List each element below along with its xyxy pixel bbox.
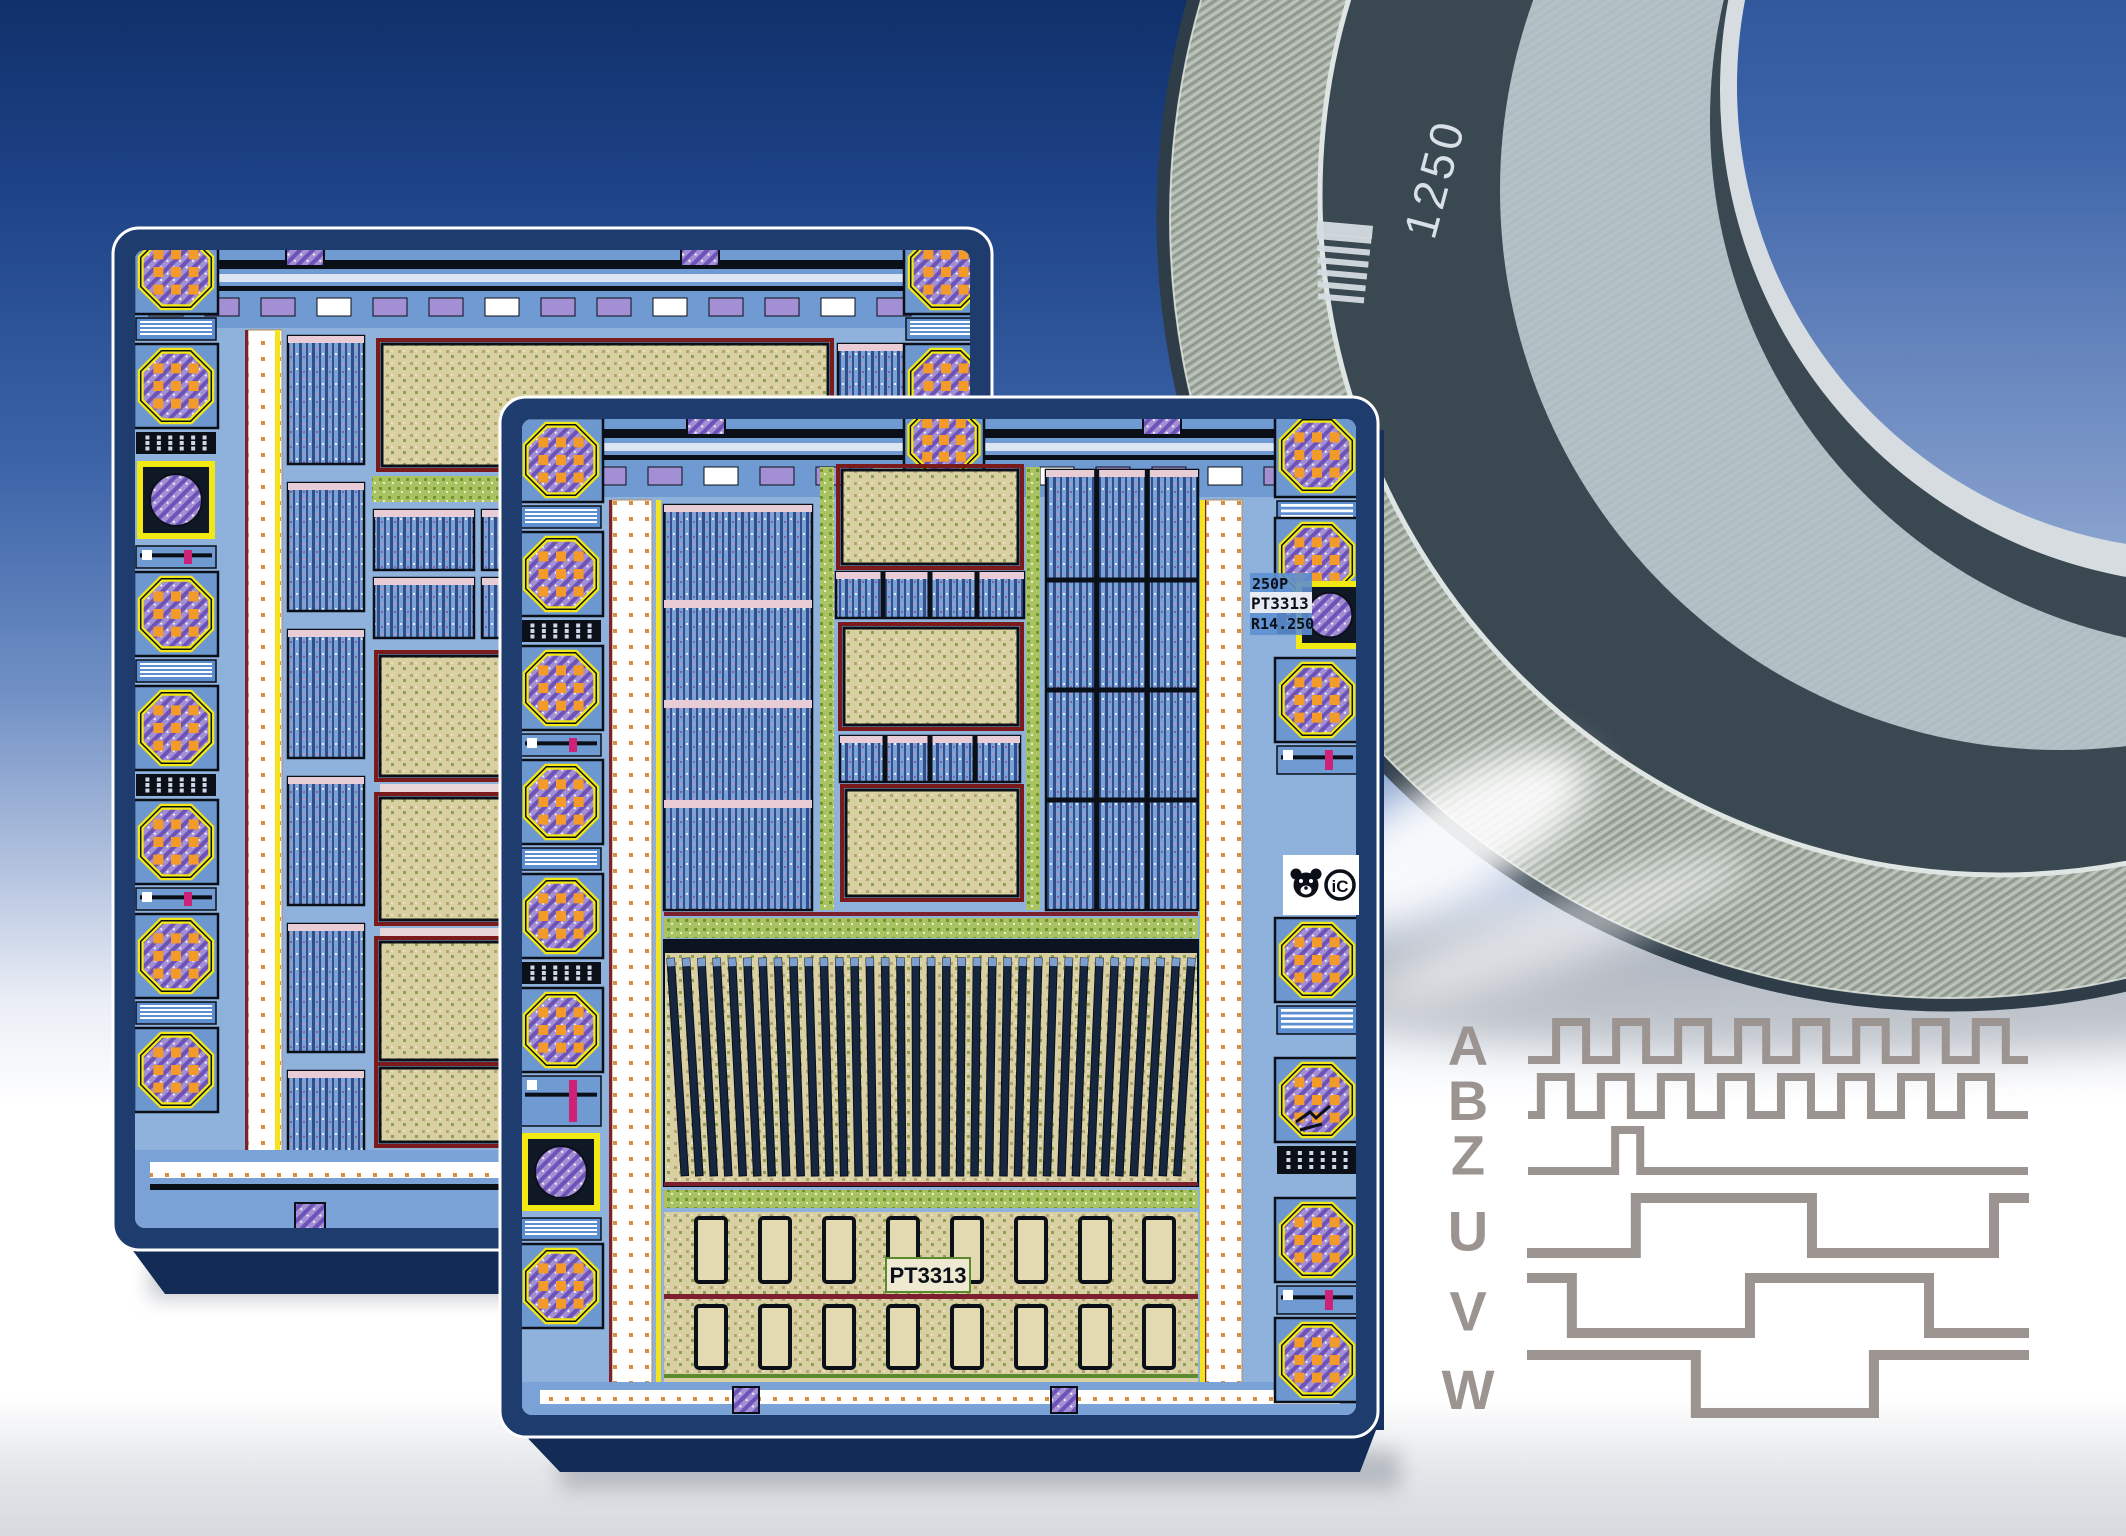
circuit-block <box>1277 746 1357 774</box>
ic-haus-logo-text: iC <box>1332 877 1349 896</box>
circuit-block <box>521 506 601 528</box>
guard-band <box>664 918 1198 938</box>
photodiode-segment <box>760 1306 790 1368</box>
io-ring-top <box>135 250 970 328</box>
circuit-block <box>521 1218 601 1240</box>
photodiode-array <box>664 940 1198 1186</box>
photodiode-segment <box>824 1306 854 1368</box>
photodiode-segment-region <box>664 1212 1198 1410</box>
power-rail-line <box>1200 500 1205 1410</box>
circuit-block <box>136 546 216 568</box>
signal-label-u: U <box>1448 1200 1488 1263</box>
waveform-z <box>1532 1130 2024 1171</box>
circuit-block <box>136 1002 216 1024</box>
chip-part-number: PT3313 <box>889 1263 966 1288</box>
waveform-w <box>1532 1355 2024 1413</box>
circuit-block <box>521 734 601 756</box>
bond-pad <box>1275 658 1359 742</box>
logic-array-block <box>374 510 474 570</box>
bond-pad <box>519 532 603 616</box>
top-edge-pad <box>733 1387 759 1413</box>
bond-pad <box>134 572 218 656</box>
power-rail-line <box>656 500 661 1410</box>
power-rail-line <box>275 330 280 1210</box>
circuit-block <box>521 848 601 870</box>
logic-array-block <box>288 336 364 464</box>
circuit-block <box>136 660 216 682</box>
encoder-signal-timing-diagram: ABZUVW <box>1442 1014 2024 1421</box>
ic-haus-logo-icon: iC <box>1326 871 1354 899</box>
photodiode-segment <box>1016 1218 1046 1282</box>
bond-pad <box>134 344 218 428</box>
logic-array-block <box>288 630 364 758</box>
circuit-block <box>1277 1146 1357 1174</box>
bond-pad <box>1275 1198 1359 1282</box>
waveform-v <box>1532 1278 2024 1333</box>
bond-pad <box>1275 918 1359 1002</box>
logic-array-block <box>288 777 364 905</box>
chip-die-front <box>500 397 1400 1490</box>
photodiode-segment <box>696 1218 726 1282</box>
photodiode-segment <box>696 1306 726 1368</box>
scene-canvas: 1250 250P PT3313 R14.250 PT3313 iC <box>0 0 2126 1536</box>
signal-label-z: Z <box>1451 1124 1485 1187</box>
chip-id-block: 250P PT3313 R14.250 <box>1250 573 1314 635</box>
bond-pad <box>134 1028 218 1112</box>
photodiode-segment <box>1144 1306 1174 1368</box>
circular-test-pad <box>140 464 212 536</box>
bond-pad <box>134 914 218 998</box>
bond-pad <box>1275 1058 1359 1142</box>
product-composite-image: 1250 250P PT3313 R14.250 PT3313 iC <box>0 0 2126 1536</box>
circuit-block <box>136 318 216 340</box>
logic-array-block <box>288 924 364 1052</box>
photodiode-segment <box>888 1306 918 1368</box>
chip-id-line-3: R14.250 <box>1251 615 1314 633</box>
photodiode-segment <box>1080 1218 1110 1282</box>
waveform-u <box>1532 1198 2024 1253</box>
photodiode-segment <box>760 1218 790 1282</box>
logic-array-block <box>374 578 474 638</box>
chip-bottom-label: PT3313 <box>886 1258 970 1292</box>
bond-pad <box>519 1244 603 1328</box>
bond-pad <box>519 988 603 1072</box>
capacitor-block <box>842 786 1022 900</box>
bond-pad <box>1275 413 1359 497</box>
capacitor-block <box>838 466 1022 568</box>
logic-array-block <box>288 483 364 611</box>
circular-test-pad <box>525 1136 597 1208</box>
manufacturer-logos: iC <box>1283 855 1359 915</box>
photodiode-segment <box>1144 1218 1174 1282</box>
signal-label-a: A <box>1448 1014 1488 1077</box>
logic-array-block <box>1046 470 1198 910</box>
photodiode-segment <box>824 1218 854 1282</box>
bond-pad <box>1275 1318 1359 1402</box>
photodiode-segment <box>1016 1306 1046 1368</box>
circuit-block <box>1277 1006 1357 1034</box>
photodiode-segment <box>952 1306 982 1368</box>
chip-id-line-1: 250P <box>1252 575 1288 593</box>
bond-pad <box>519 760 603 844</box>
bond-pad <box>519 418 603 502</box>
circuit-block <box>136 774 216 796</box>
circuit-block <box>136 432 216 454</box>
capacitor-block <box>840 624 1022 729</box>
signal-label-v: V <box>1449 1280 1486 1343</box>
circuit-block <box>136 888 216 910</box>
routing-channel <box>612 500 652 1410</box>
chip-id-line-2: PT3313 <box>1251 594 1309 613</box>
signal-label-w: W <box>1442 1358 1495 1421</box>
routing-channel <box>1206 500 1242 1410</box>
circuit-block <box>521 620 601 642</box>
logic-array-block <box>836 572 1024 618</box>
bond-pad <box>134 800 218 884</box>
circuit-block <box>521 1076 601 1126</box>
circuit-block <box>521 962 601 984</box>
bond-pad <box>519 874 603 958</box>
top-edge-pad <box>1051 1387 1077 1413</box>
logic-array-block <box>840 736 1020 782</box>
circuit-block <box>1277 1286 1357 1314</box>
bond-pad <box>519 646 603 730</box>
photodiode-segment <box>1080 1306 1110 1368</box>
bond-pad <box>134 686 218 770</box>
waveform-b <box>1532 1077 2024 1115</box>
